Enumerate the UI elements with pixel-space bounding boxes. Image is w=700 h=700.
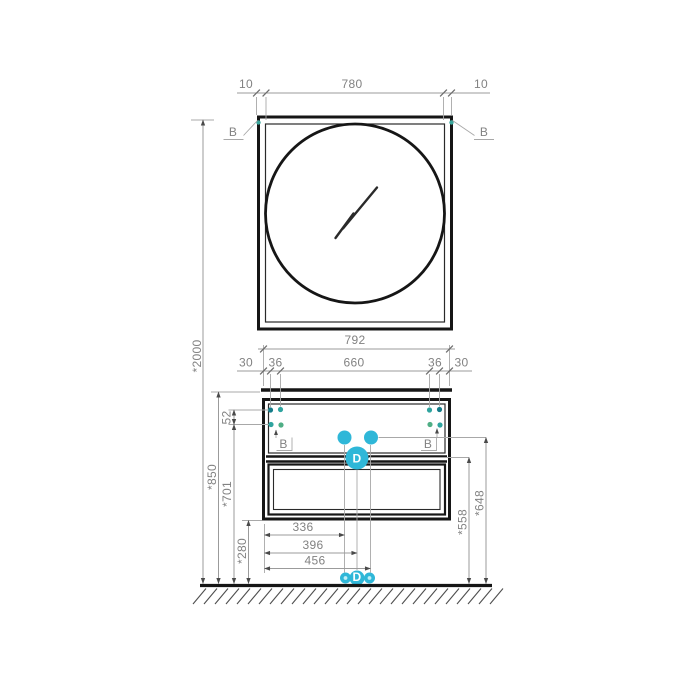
drawer-top-front: [269, 404, 446, 453]
dim-gap-left-label: 36: [269, 356, 283, 370]
dim-frame-right-label: 10: [474, 77, 488, 91]
mounting-dot: [268, 422, 273, 427]
floor-point-left-mark: [344, 576, 348, 580]
mounting-dot: [268, 407, 273, 412]
section-b-label: B: [424, 437, 432, 451]
section-label-mirror-left: B: [224, 121, 258, 140]
floor-connection-points: D: [340, 570, 375, 586]
mounting-dot: [437, 407, 442, 412]
dim-floor-offsets: 336 396 456: [265, 520, 371, 573]
mounting-dots-left: [268, 407, 284, 428]
water-point-right: [364, 431, 378, 445]
vanity-cabinet: B B D: [261, 390, 486, 573]
mounting-dot: [437, 422, 442, 427]
floor-hatching: [193, 589, 503, 605]
dim-heights-left: *2000 *850 *701 *280: [190, 120, 262, 584]
mounting-dots-right: [427, 407, 443, 428]
dim-drain-height-label: *558: [456, 509, 470, 535]
section-b-label: B: [279, 437, 287, 451]
dim-cabinet-width-label: 792: [345, 333, 366, 347]
dim-offset-right-label: 456: [305, 554, 326, 568]
dim-underside-height-label: *280: [235, 538, 249, 564]
dim-water-height-label: *648: [473, 490, 487, 516]
dim-edge-left-label: 30: [239, 356, 253, 370]
mirror-unit: [256, 117, 453, 329]
dim-heights-right: *558 *648: [456, 438, 487, 584]
floor-drain-label: D: [353, 570, 362, 584]
dim-edge-right-label: 30: [455, 356, 469, 370]
dim-worktop-height-label: *850: [205, 464, 219, 490]
dim-mirror-width: 10 780 10: [237, 77, 490, 120]
mirror-frame-outer: [259, 117, 452, 329]
dim-cabinet-width: 792 30 36 660 36 30: [237, 333, 472, 407]
water-point-left: [338, 431, 352, 445]
section-label-cabinet-left: B: [276, 430, 292, 451]
dim-offset-left-label: 336: [293, 520, 314, 534]
mirror-shine-icon: [336, 188, 378, 239]
section-b-label: B: [480, 125, 488, 139]
section-label-mirror-right: B: [453, 121, 495, 140]
mounting-dot: [278, 422, 283, 427]
floor: [193, 586, 503, 605]
section-b-label: B: [229, 125, 237, 139]
mirror-frame-inner: [266, 124, 445, 322]
installation-diagram: 10 780 10 B B: [0, 0, 700, 700]
dim-gap-right-label: 36: [428, 356, 442, 370]
dim-mirror-width-label: 780: [342, 77, 363, 91]
mounting-dot: [278, 407, 283, 412]
dim-overall-height-label: *2000: [190, 340, 204, 373]
floor-point-right-mark: [368, 576, 372, 580]
section-label-cabinet-right: B: [421, 429, 437, 452]
dim-hole-span-label: 660: [344, 356, 365, 370]
technical-drawing: 10 780 10 B B: [0, 0, 700, 700]
drain-point-label: D: [353, 452, 362, 466]
mounting-dot: [427, 422, 432, 427]
dim-offset-center-label: 396: [303, 538, 324, 552]
mounting-dot: [427, 407, 432, 412]
dim-52-label: 52: [220, 411, 234, 425]
dim-frame-left-label: 10: [239, 77, 253, 91]
dim-bracket-height-label: *701: [220, 481, 234, 507]
dim-hole-row-gap: 52: [220, 410, 269, 425]
